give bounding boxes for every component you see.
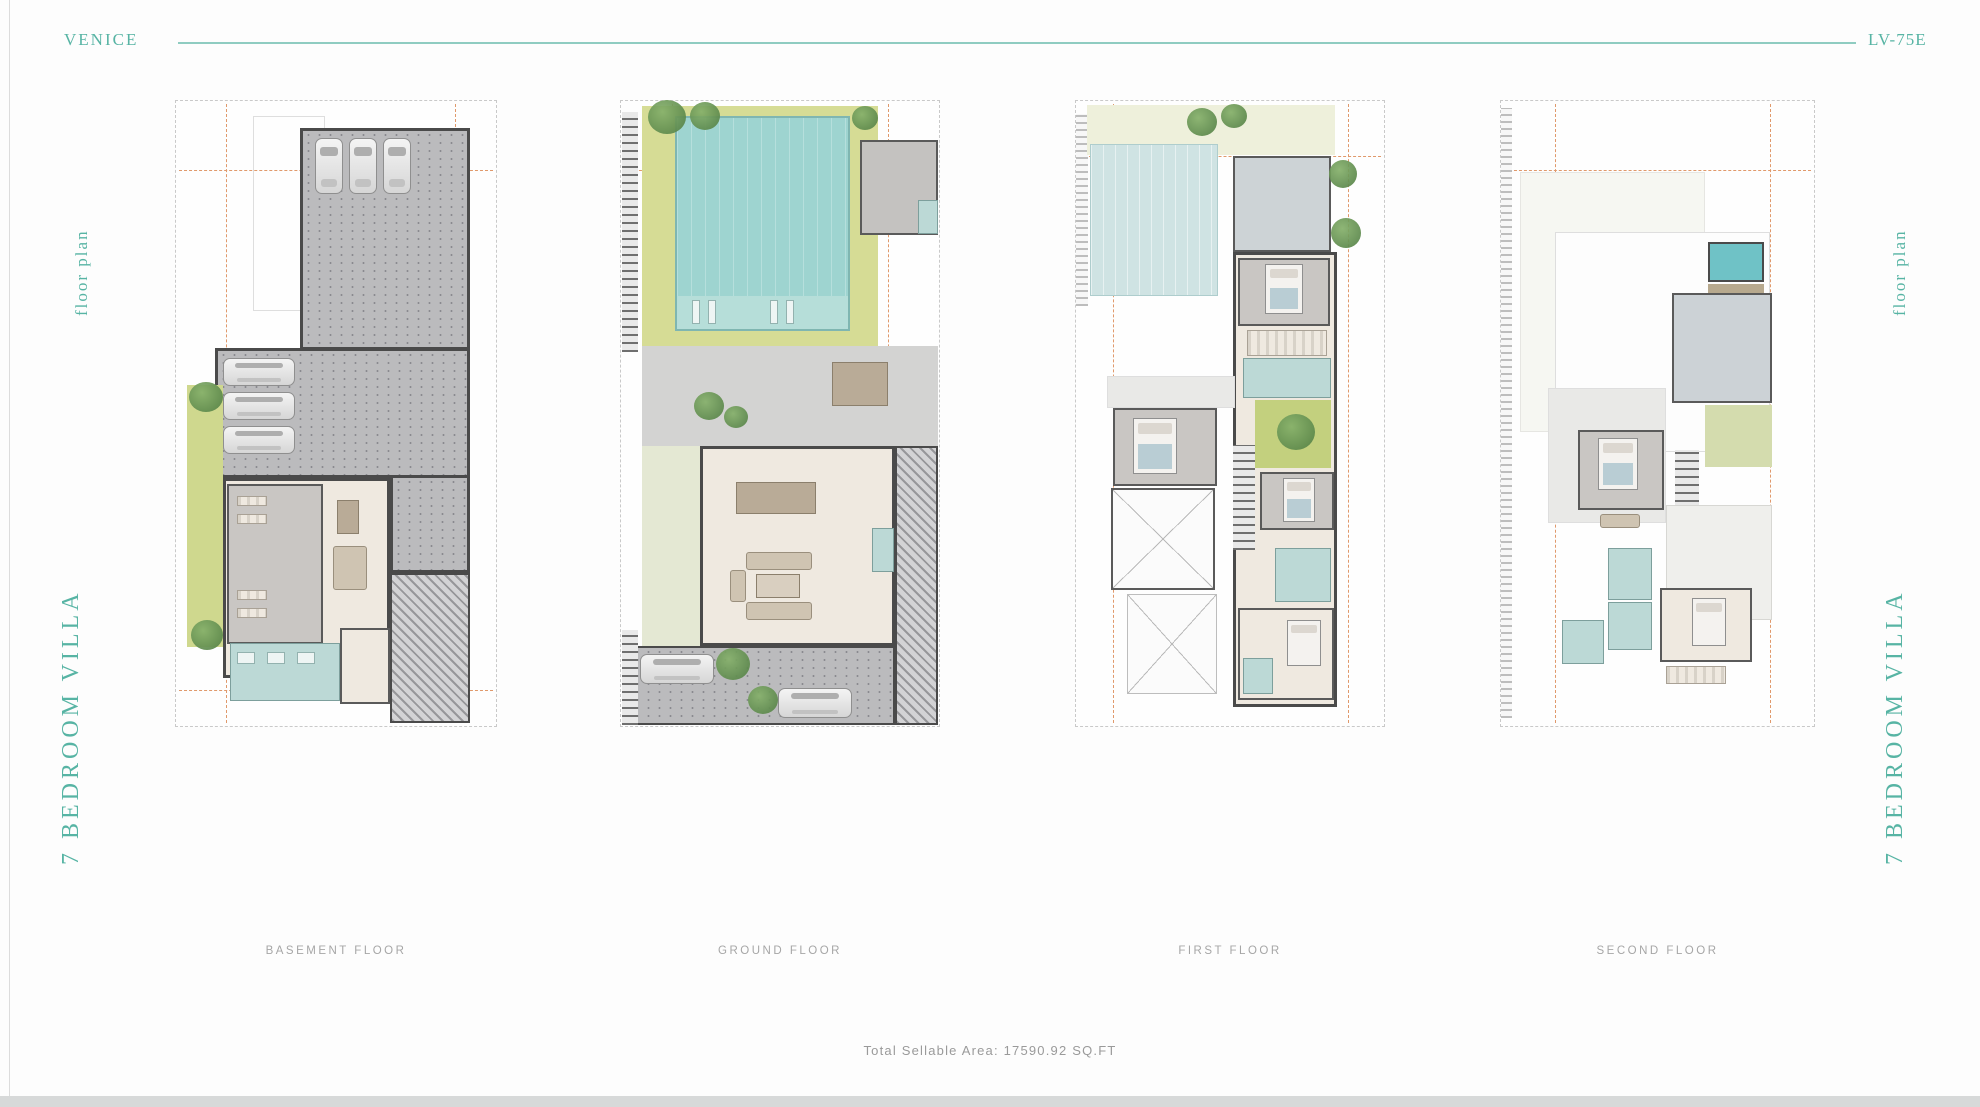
left-floor-plan-label: floor plan	[72, 205, 92, 340]
pool-deck	[1708, 284, 1764, 293]
plan-caption: GROUND FLOOR	[620, 945, 940, 957]
tree-icon	[1221, 104, 1247, 128]
powder-room	[872, 528, 894, 572]
grid-line	[1504, 170, 1811, 171]
terrace-area	[642, 346, 938, 446]
green-terrace	[1705, 405, 1772, 467]
ramp-hatch	[390, 573, 470, 723]
tree-icon	[1187, 108, 1217, 136]
tree-icon	[191, 620, 223, 650]
car-icon	[223, 358, 295, 386]
grid-line	[1348, 104, 1349, 723]
bath-fixture	[237, 652, 255, 664]
garden-strip	[187, 385, 223, 647]
bed-icon	[1287, 620, 1321, 666]
header-divider-line	[178, 42, 1856, 44]
tree-icon	[1329, 160, 1357, 188]
closet	[1247, 330, 1327, 356]
car-icon	[349, 138, 377, 194]
car-icon	[315, 138, 343, 194]
sofa	[746, 602, 812, 620]
ground-floor-plan: GROUND FLOOR	[620, 100, 940, 727]
bed-icon	[1133, 418, 1177, 474]
pool-void	[1090, 144, 1218, 296]
bath-fixture	[297, 652, 315, 664]
gym-equipment	[237, 590, 267, 600]
void-room	[1111, 488, 1215, 590]
bed-icon	[1265, 264, 1303, 314]
tree-icon	[189, 382, 223, 412]
tree-icon	[648, 100, 686, 134]
bathroom-area	[918, 200, 938, 234]
tree-icon	[694, 392, 724, 420]
tree-icon	[716, 648, 750, 680]
family-sitting-room	[1672, 293, 1772, 403]
bathroom-area	[1243, 658, 1273, 694]
side-stairs-hatch	[622, 112, 638, 352]
project-name: VENICE	[64, 30, 138, 50]
courtyard-strip	[642, 446, 700, 646]
bathroom-area	[1608, 548, 1652, 600]
page-bottom-edge	[0, 1096, 1980, 1107]
bath-fixture	[267, 652, 285, 664]
tree-icon	[690, 102, 720, 130]
bathroom-area	[1608, 602, 1652, 650]
car-icon	[383, 138, 411, 194]
car-icon	[223, 426, 295, 454]
first-floor-plan: FIRST FLOOR	[1075, 100, 1385, 727]
gym-room	[227, 484, 323, 644]
plan-caption: BASEMENT FLOOR	[175, 945, 497, 957]
second-floor-plan: SECOND FLOOR	[1500, 100, 1815, 727]
void-room	[1127, 594, 1217, 694]
bed-icon	[1283, 478, 1315, 522]
bed-icon	[1692, 598, 1726, 646]
coffee-table	[756, 574, 800, 598]
tree-icon	[852, 106, 878, 130]
side-stairs-hatch	[622, 630, 638, 725]
armchair	[730, 570, 746, 602]
pool-lounger	[692, 300, 700, 324]
bathroom-area	[1275, 548, 1331, 602]
right-floor-plan-label: floor plan	[1890, 205, 1910, 340]
tree-icon	[748, 686, 778, 714]
ramp-area	[390, 475, 470, 573]
gym-equipment	[237, 514, 267, 524]
lounge-table	[337, 500, 359, 534]
floor-plan-sheet: VENICE LV-75E floor plan 7 BEDROOM VILLA…	[0, 0, 1980, 1107]
sitting-terrace	[1233, 156, 1331, 252]
plan-caption: FIRST FLOOR	[1075, 945, 1385, 957]
outdoor-dining-table	[832, 362, 888, 406]
right-villa-label: 7 BEDROOM VILLA	[1882, 545, 1909, 910]
drive-hatch	[895, 446, 938, 725]
closet	[1666, 666, 1726, 684]
jacuzzi-pool	[1708, 242, 1764, 282]
gym-equipment	[237, 496, 267, 506]
store-room	[340, 628, 390, 704]
lounge-sofa	[333, 546, 367, 590]
pool-lounger	[708, 300, 716, 324]
left-villa-label: 7 BEDROOM VILLA	[58, 545, 85, 910]
bathroom-area	[1562, 620, 1604, 664]
plan-caption: SECOND FLOOR	[1500, 945, 1815, 957]
pool-lounger	[786, 300, 794, 324]
unit-code: LV-75E	[1868, 30, 1927, 50]
sofa	[1600, 514, 1640, 528]
basement-floor-plan: BASEMENT FLOOR	[175, 100, 497, 727]
pool-lounger	[770, 300, 778, 324]
total-sellable-area: Total Sellable Area: 17590.92 SQ.FT	[863, 1043, 1116, 1058]
bed-icon	[1598, 438, 1638, 490]
tree-icon	[724, 406, 748, 428]
page-left-edge	[9, 0, 10, 1107]
dining-table	[736, 482, 816, 514]
pool-shallow-deck	[677, 296, 848, 329]
sheet-footer: Total Sellable Area: 17590.92 SQ.FT	[0, 1042, 1980, 1060]
bathroom-area	[1243, 358, 1331, 398]
tree-icon	[1277, 414, 1315, 450]
car-icon	[223, 392, 295, 420]
car-icon	[640, 654, 714, 684]
staircase	[1233, 445, 1255, 550]
tree-icon	[1331, 218, 1361, 248]
sofa	[746, 552, 812, 570]
balcony-strip	[1107, 376, 1235, 408]
edge-hatch	[1501, 108, 1512, 718]
gym-equipment	[237, 608, 267, 618]
car-icon	[778, 688, 852, 718]
